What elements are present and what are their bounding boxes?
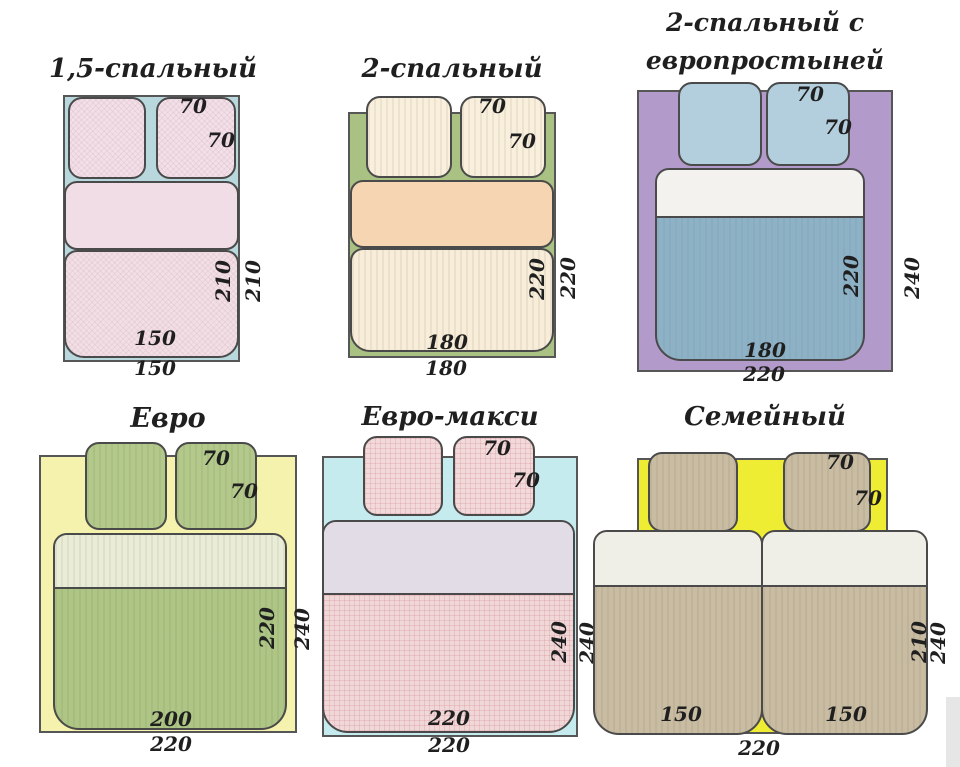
pillow-width-label: 70	[175, 95, 211, 117]
sheet-height-label: 220	[557, 253, 579, 303]
duvet-fold	[657, 170, 863, 218]
pillow-height-label: 70	[820, 116, 856, 138]
duvet-left-width-label: 150	[651, 703, 711, 725]
pillow-height-label: 70	[508, 469, 544, 491]
pillow-left	[363, 436, 443, 516]
duvet-fold	[64, 181, 239, 250]
duvet-width-label: 180	[735, 339, 795, 361]
panel-title: Семейный	[588, 400, 942, 434]
duvet-height-label: 220	[840, 251, 862, 301]
bedding-sizes-infographic: 1,5-спальный 70 70 210 210 150 150 2-спа…	[0, 0, 960, 767]
duvet-height-label: 210	[212, 256, 234, 306]
pillow-left	[68, 97, 146, 179]
pillow-width-label: 70	[474, 95, 510, 117]
sheet-width-label: 220	[729, 737, 789, 759]
sheet-width-label: 150	[125, 357, 185, 379]
pillow-left	[648, 452, 738, 532]
panel-title: 2-спальный	[332, 52, 572, 86]
panel-family: Семейный 70 70 210 240 150 150 220	[588, 392, 960, 767]
pillow-left	[678, 82, 762, 166]
duvet	[322, 520, 575, 733]
pillow-height-label: 70	[504, 130, 540, 152]
sheet-height-label: 240	[291, 604, 313, 654]
panel-title-line2: европростыней	[625, 44, 905, 78]
sheet-height-label: 240	[927, 618, 949, 668]
duvet-width-label: 150	[125, 327, 185, 349]
panel-title: 1,5-спальный	[33, 52, 273, 86]
duvet-height-label: 220	[256, 603, 278, 653]
sheet-height-label: 210	[242, 256, 264, 306]
sheet-width-label: 180	[416, 357, 476, 379]
pillow-left	[366, 96, 452, 178]
panel-2-sleeper-euro-sheet: 2-спальный с европростыней 70 70 220 240…	[625, 0, 960, 392]
pillow-width-label: 70	[479, 437, 515, 459]
sheet-width-label: 220	[141, 733, 201, 755]
pillow-height-label: 70	[226, 480, 262, 502]
duvet-width-label: 220	[419, 707, 479, 729]
duvet-height-label: 240	[548, 617, 570, 667]
duvet	[655, 168, 865, 361]
duvet-height-label: 220	[526, 254, 548, 304]
duvet-width-label: 180	[417, 331, 477, 353]
sheet-width-label: 220	[419, 734, 479, 756]
panel-1-5-sleeper: 1,5-спальный 70 70 210 210 150 150	[33, 40, 273, 390]
panel-title-line1: 2-спальный с	[625, 6, 905, 40]
duvet	[53, 533, 287, 730]
panel-title: Евро-макси	[312, 400, 588, 434]
duvet-fold	[324, 522, 573, 595]
panel-euro-maxi: Евро-макси 70 70 240 240 220 220	[312, 392, 588, 767]
sheet-width-label: 220	[734, 363, 794, 385]
panel-2-sleeper: 2-спальный 70 70 220 220 180 180	[332, 40, 572, 390]
duvet-right-width-label: 150	[816, 703, 876, 725]
pillow-width-label: 70	[822, 451, 858, 473]
pillow-left	[85, 442, 167, 530]
sheet-height-label: 240	[901, 253, 923, 303]
panel-title: Евро	[28, 402, 308, 436]
pillow-height-label: 70	[850, 487, 886, 509]
duvet-right-fold	[763, 532, 926, 587]
pillow-height-label: 70	[203, 129, 239, 151]
panel-euro: Евро 70 70 220 240 200 220	[28, 392, 308, 767]
duvet-left-fold	[595, 532, 761, 587]
pillow-width-label: 70	[792, 83, 828, 105]
duvet-fold	[350, 180, 554, 248]
pillow-width-label: 70	[198, 447, 234, 469]
duvet-fold	[55, 535, 285, 589]
duvet-width-label: 200	[141, 708, 201, 730]
photo-edge-artifact	[946, 697, 960, 767]
